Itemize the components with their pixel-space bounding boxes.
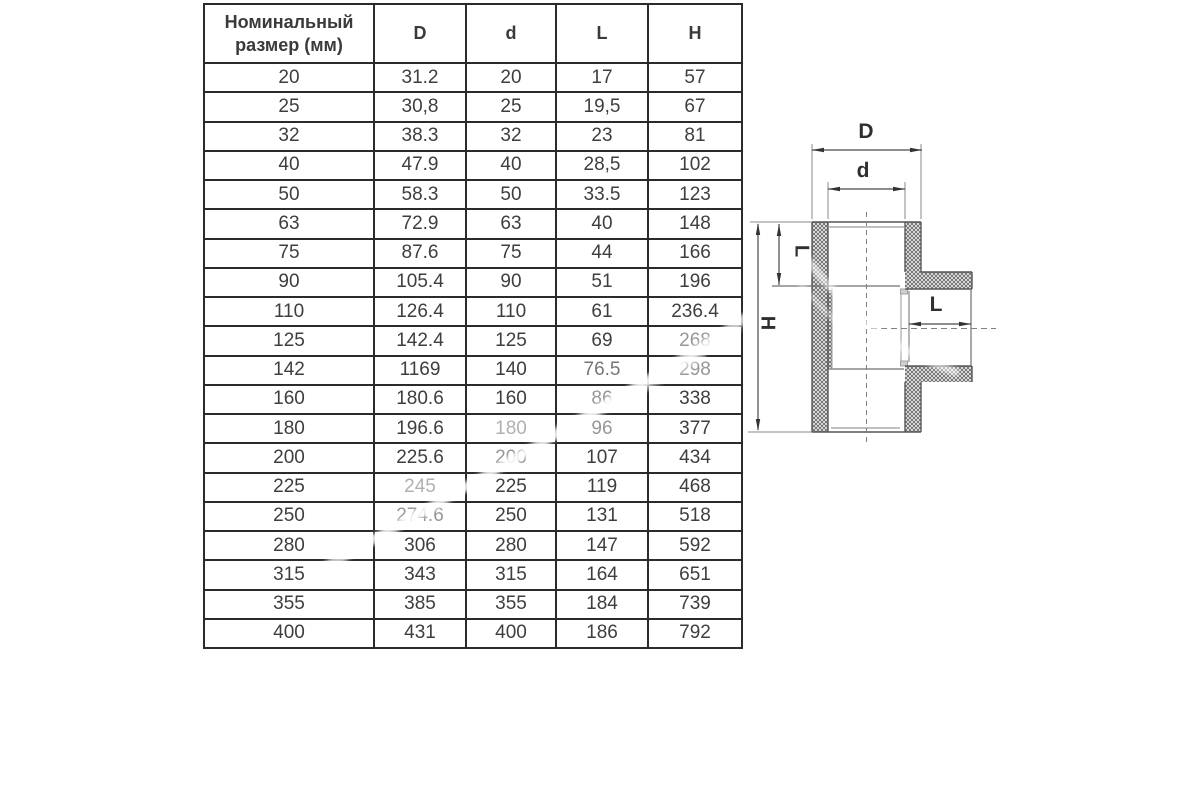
svg-text:H: H [757, 316, 779, 330]
svg-text:D: D [858, 120, 873, 143]
svg-text:d: d [857, 159, 870, 182]
svg-text:L: L [791, 245, 813, 257]
svg-text:L: L [930, 293, 943, 316]
